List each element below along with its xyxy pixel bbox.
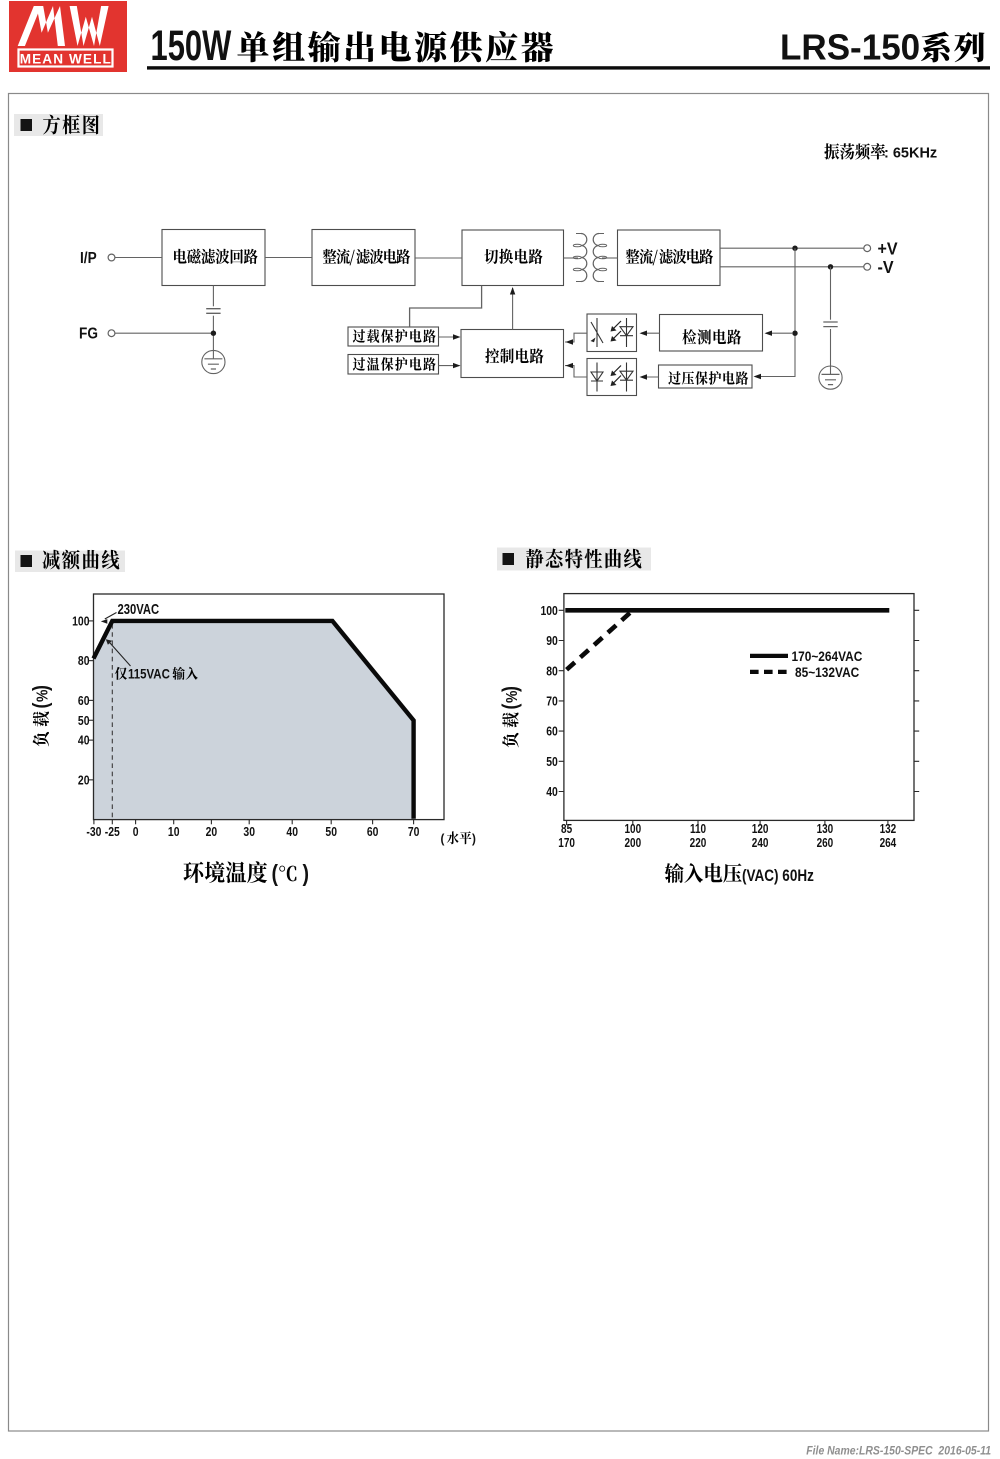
svg-text:130: 130 (817, 823, 834, 836)
svg-text:FG: FG (79, 326, 98, 343)
svg-text:+V: +V (878, 239, 899, 259)
svg-text:264: 264 (880, 837, 897, 850)
svg-text:240: 240 (752, 837, 769, 850)
svg-text:60: 60 (78, 694, 90, 708)
svg-text:70: 70 (408, 825, 420, 839)
svg-text:150W: 150W (151, 21, 232, 69)
svg-text:200: 200 (624, 837, 641, 850)
svg-text:50: 50 (325, 825, 337, 839)
svg-text:60: 60 (546, 725, 558, 739)
svg-text:70: 70 (546, 694, 558, 708)
svg-text:(: ( (441, 831, 446, 846)
svg-text:I/P: I/P (80, 250, 97, 267)
svg-text:30: 30 (243, 825, 255, 839)
svg-text:-30: -30 (86, 825, 101, 839)
svg-text:100: 100 (624, 823, 641, 836)
svg-text:20: 20 (206, 825, 218, 839)
svg-text:60: 60 (367, 825, 379, 839)
svg-text:115VAC: 115VAC (128, 667, 170, 682)
svg-text:(: ( (499, 703, 523, 709)
svg-text:170: 170 (558, 837, 575, 850)
svg-text:100: 100 (540, 604, 558, 618)
svg-text:100: 100 (72, 614, 90, 628)
svg-text:220: 220 (690, 837, 707, 850)
svg-text:File Name:LRS-150-SPEC 2016-0: File Name:LRS-150-SPEC 2016-05-11 (806, 1445, 991, 1458)
svg-text:10: 10 (168, 825, 180, 839)
svg-text:(: ( (272, 861, 279, 887)
svg-text:40: 40 (78, 734, 90, 748)
svg-text:-V: -V (878, 257, 895, 277)
svg-text:120: 120 (752, 823, 769, 836)
svg-text:): ) (472, 831, 476, 846)
svg-text:): ) (303, 861, 310, 887)
svg-text:): ) (499, 686, 523, 692)
svg-text:40: 40 (546, 785, 558, 799)
svg-text:80: 80 (78, 654, 90, 668)
svg-text:20: 20 (78, 773, 90, 787)
svg-text:: 65KHz: : 65KHz (884, 146, 937, 162)
svg-text:90: 90 (546, 634, 558, 648)
svg-text:260: 260 (817, 837, 834, 850)
svg-text:85: 85 (561, 823, 572, 836)
svg-text:230VAC: 230VAC (118, 600, 160, 617)
svg-text:MEAN WELL: MEAN WELL (20, 52, 112, 67)
svg-text:(: ( (29, 702, 53, 708)
svg-text:80: 80 (546, 664, 558, 678)
svg-text:): ) (29, 685, 53, 691)
svg-text:50: 50 (78, 714, 90, 728)
svg-text:110: 110 (690, 823, 706, 836)
svg-text:0: 0 (133, 825, 139, 839)
svg-text:40: 40 (286, 825, 298, 839)
svg-text:(VAC) 60Hz: (VAC) 60Hz (742, 867, 814, 886)
svg-text:-25: -25 (105, 825, 120, 839)
svg-text:85~132VAC: 85~132VAC (795, 664, 860, 680)
svg-text:170~264VAC: 170~264VAC (792, 648, 863, 664)
svg-text:LRS-150: LRS-150 (780, 27, 920, 68)
svg-text:132: 132 (880, 823, 897, 836)
svg-text:50: 50 (546, 755, 558, 769)
